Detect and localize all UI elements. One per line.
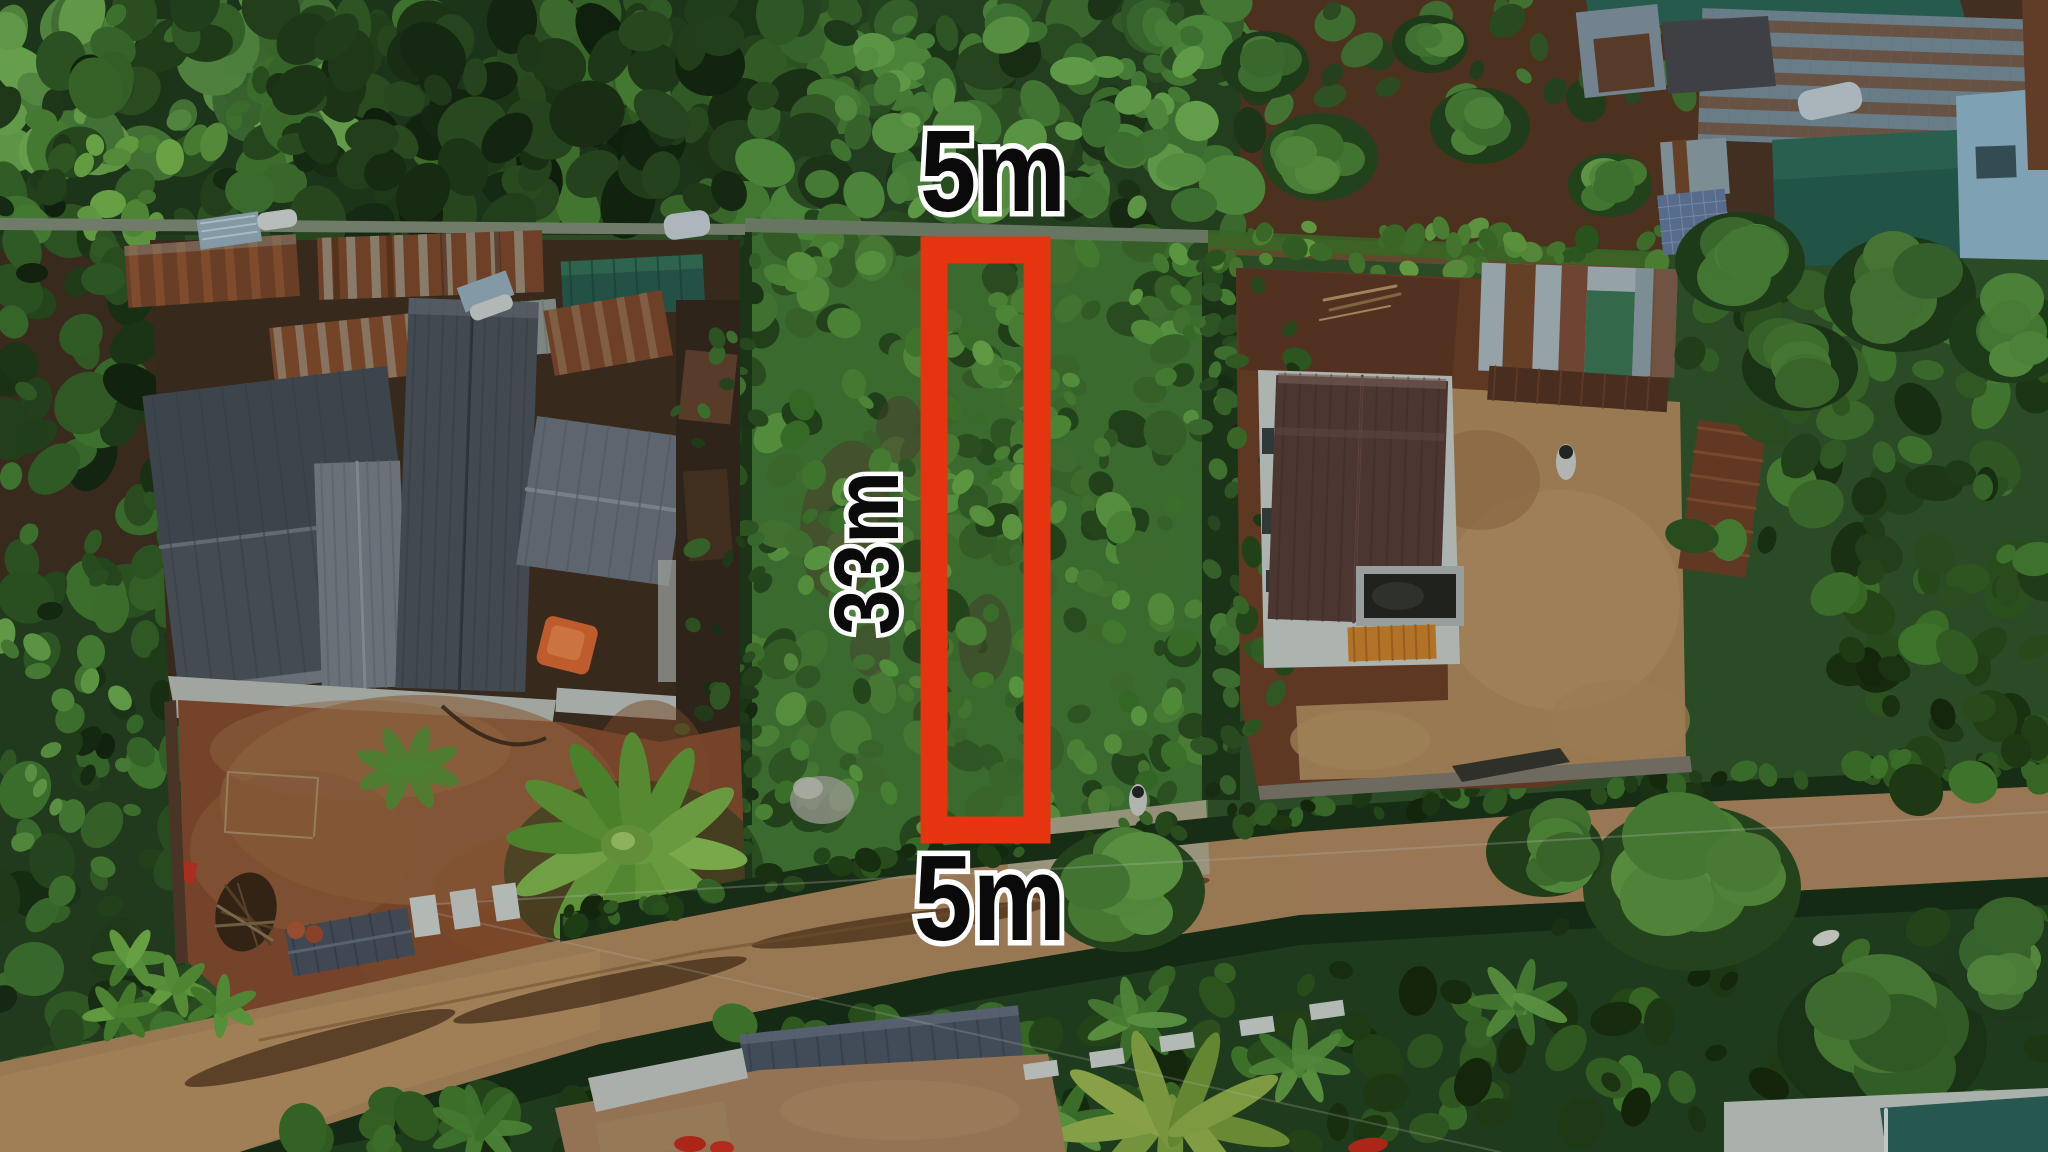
svg-text:33m: 33m bbox=[816, 471, 918, 635]
svg-text:5m: 5m bbox=[920, 106, 1066, 236]
svg-text:5m: 5m bbox=[914, 830, 1066, 966]
